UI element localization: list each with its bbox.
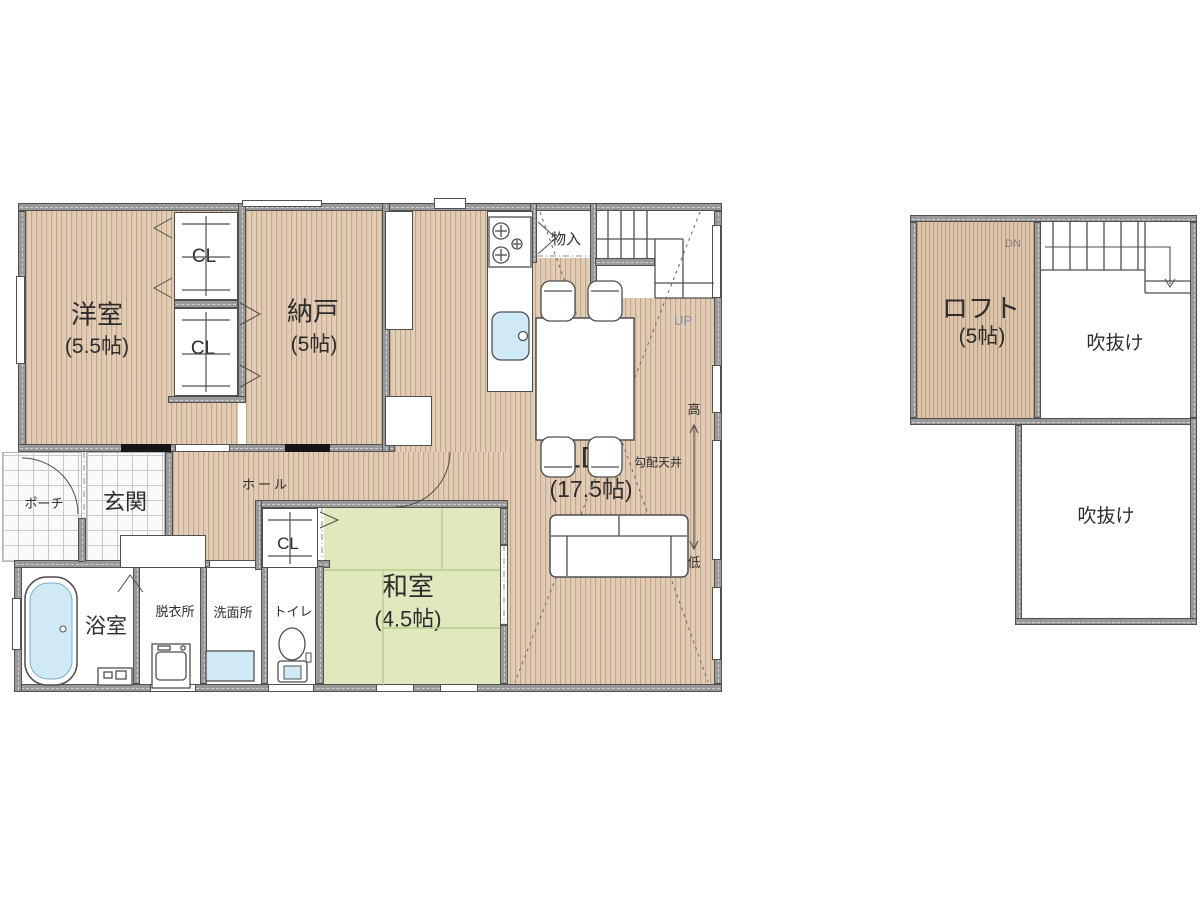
label-changing-room: 脱衣所 xyxy=(155,605,194,619)
label-storage-room: 納戸 xyxy=(287,298,339,325)
wall-void-bottom xyxy=(1015,618,1197,625)
cabinet-low xyxy=(385,396,432,446)
floor-washroom xyxy=(207,568,261,684)
wall-void-right xyxy=(1190,418,1197,625)
label-storage-size: (5帖) xyxy=(291,334,338,356)
label-closet-2: CL xyxy=(191,339,215,359)
label-ldk-size: (17.5帖) xyxy=(549,477,632,501)
window-bottom-2 xyxy=(268,684,314,692)
label-japanese-room: 和室 xyxy=(382,573,434,600)
doorway-washroom xyxy=(209,560,256,568)
wall-outer-top xyxy=(18,203,722,211)
wall-loft-right xyxy=(1190,222,1197,418)
window-bottom-1 xyxy=(150,684,196,692)
label-ldk: LDK xyxy=(564,442,622,474)
label-ceiling-low: 低 xyxy=(687,556,700,570)
wall-bath-changing xyxy=(133,566,140,684)
label-sloped-ceiling: 勾配天井 xyxy=(634,457,682,470)
window-bottom-4 xyxy=(440,684,478,692)
window-top-kitchen xyxy=(434,198,466,209)
wall-loft-left xyxy=(910,222,917,418)
wall-washroom-toilet xyxy=(261,566,268,684)
wall-closet-bottom xyxy=(168,396,246,403)
window-left-bathroom xyxy=(12,598,21,650)
label-entrance: 玄関 xyxy=(103,490,147,513)
wall-porch-stub xyxy=(78,518,86,562)
label-closet-japanese: CL xyxy=(277,535,299,553)
label-japanese-size: (4.5帖) xyxy=(374,607,441,630)
label-loft-size: (5帖) xyxy=(959,326,1006,348)
doorway-japanese-ldk xyxy=(500,545,508,625)
label-void-lower: 吹抜け xyxy=(1077,507,1134,527)
label-ceiling-high: 高 xyxy=(687,403,700,417)
window-left-western xyxy=(16,276,25,364)
label-stairs-up: UP xyxy=(674,314,692,328)
window-bottom-3 xyxy=(376,684,414,692)
wall-outer-bottom xyxy=(14,684,722,692)
floor-storage-room xyxy=(246,211,382,444)
label-hall: ホール xyxy=(242,478,290,492)
label-porch: ポーチ xyxy=(24,497,63,511)
wall-closet-divider xyxy=(174,300,238,308)
floor-changing-room xyxy=(140,568,200,684)
window-right-ldk-2 xyxy=(712,440,721,560)
label-storage-small: 物入 xyxy=(551,232,581,248)
wall-loft-bottom xyxy=(910,418,1197,425)
wall-japanese-closet-left xyxy=(255,500,262,570)
floor-stairs-1f xyxy=(597,211,714,298)
shoe-cabinet xyxy=(120,535,206,568)
wall-loft-divider xyxy=(1034,222,1041,418)
wall-changing-washroom xyxy=(200,566,207,684)
opening-storage-door xyxy=(285,444,330,452)
window-right-ldk-1 xyxy=(712,365,721,413)
window-top-storage xyxy=(242,200,322,207)
opening-entrance-top xyxy=(121,444,171,452)
wall-japanese-top xyxy=(255,500,508,508)
label-stairs-down: DN xyxy=(1005,239,1021,251)
doorway-hall-western xyxy=(175,444,230,452)
wall-storage-stairs xyxy=(590,203,597,298)
wall-stair-stub xyxy=(595,258,655,266)
window-right-stairs xyxy=(712,225,721,298)
label-closet-1: CL xyxy=(192,247,216,267)
floor-hall xyxy=(173,452,508,505)
wall-japanese-right-lower xyxy=(500,625,508,684)
label-toilet: トイレ xyxy=(273,605,312,619)
floor-void-upper xyxy=(1041,222,1190,418)
floorplan-page: 洋室 (5.5帖) 納戸 (5帖) 物入 LDK (17.5帖) 勾配天井 高 … xyxy=(0,0,1200,900)
label-bathroom: 浴室 xyxy=(85,616,127,638)
label-washroom: 洗面所 xyxy=(213,606,252,620)
window-right-ldk-3 xyxy=(712,587,721,660)
wall-void-left xyxy=(1015,425,1022,625)
floor-toilet xyxy=(268,568,315,684)
wall-entrance-right xyxy=(165,452,173,537)
label-loft: ロフト xyxy=(942,295,1020,322)
wall-japanese-right-upper xyxy=(500,508,508,545)
label-void-upper: 吹抜け xyxy=(1086,334,1143,354)
wall-loft-top xyxy=(910,215,1197,222)
kitchen-counter xyxy=(487,211,533,392)
cabinet-tall xyxy=(385,211,413,330)
wall-toilet-japanese xyxy=(315,566,324,684)
label-western-size: (5.5帖) xyxy=(65,336,129,358)
label-western-room: 洋室 xyxy=(71,301,123,328)
wall-closet-storage xyxy=(238,203,246,403)
